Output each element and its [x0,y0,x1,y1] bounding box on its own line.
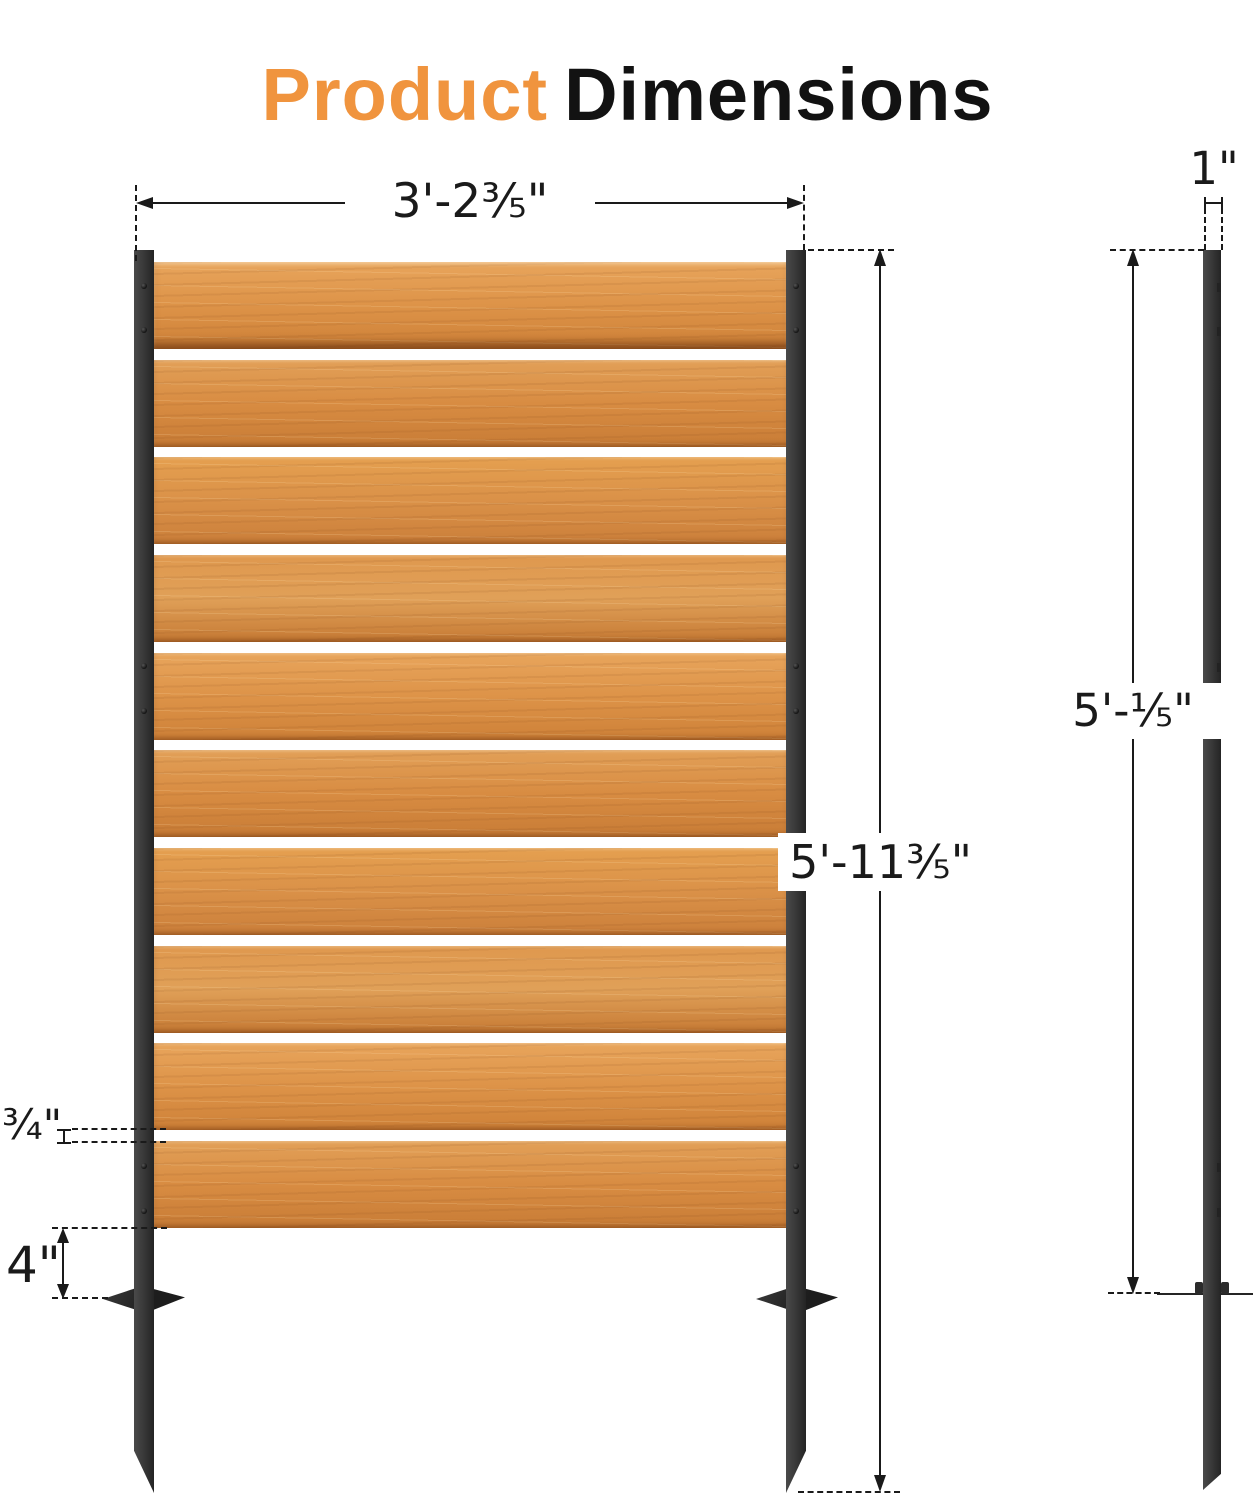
height-arrow-down-icon [874,1475,886,1492]
height-arrow-up-icon [874,249,886,266]
width-extension-right [803,185,805,250]
left-post [134,250,154,1493]
rivet [793,283,799,289]
wood-slat [154,1043,787,1130]
front-width-label: 3'-2⅗" [345,171,595,233]
side-height-arrow-down-icon [1127,1277,1139,1294]
rivet [793,1208,799,1214]
stake-dimension-line [62,1241,64,1286]
side-rivet-bump [1217,1163,1223,1172]
rivet [793,708,799,714]
gap-leader-bottom [72,1141,166,1143]
width-arrow-right-icon [787,197,804,209]
side-rivet-bump [1217,663,1223,672]
slat-panel [154,262,787,1228]
wood-slat [154,1141,787,1228]
side-post [1203,250,1221,1490]
thickness-extension-right [1221,208,1223,250]
rivet [141,708,147,714]
width-arrow-left-icon [136,197,153,209]
title-highlight: Product [262,53,549,136]
page-title: ProductDimensions [0,52,1255,137]
thickness-tick-right [1221,197,1223,208]
rivet [793,327,799,333]
wood-slat [154,946,787,1033]
side-rivet-bump [1217,1208,1223,1217]
side-height-connector-top [1110,249,1204,251]
wood-slat [154,262,787,349]
side-rivet-bump [1217,283,1223,292]
rivet [793,1163,799,1169]
stake-height-label: 4" [6,1238,60,1292]
rivet [141,1163,147,1169]
stake-leader-top [52,1227,167,1229]
thickness-extension-left [1204,208,1206,250]
wood-slat [154,653,787,740]
side-height-dimension-line [1132,264,1134,1280]
side-rivet-bump [1217,327,1223,336]
rivet [793,663,799,669]
wood-slat [154,848,787,935]
front-height-label: 5'-11⅗" [778,833,983,891]
title-rest: Dimensions [564,53,993,136]
rivet [141,327,147,333]
rivet [141,663,147,669]
thickness-tick-left [1204,197,1206,208]
wood-slat [154,555,787,642]
slat-gap-label: ¾" [2,1100,62,1150]
product-dimensions-diagram: ProductDimensions 3'-2⅗" 5'-11⅗" ¾" [0,0,1255,1500]
rivet [141,1208,147,1214]
wood-slat [154,457,787,544]
side-thickness-label: 1" [1182,144,1246,194]
wood-slat [154,360,787,447]
rivet [141,283,147,289]
side-plate-bracket-right [1221,1282,1229,1294]
side-height-label: 5'-⅕" [1045,683,1221,739]
gap-leader-top [72,1128,166,1130]
wood-slat [154,750,787,837]
side-height-arrow-up-icon [1127,249,1139,266]
side-plate-bracket-left [1195,1282,1203,1294]
